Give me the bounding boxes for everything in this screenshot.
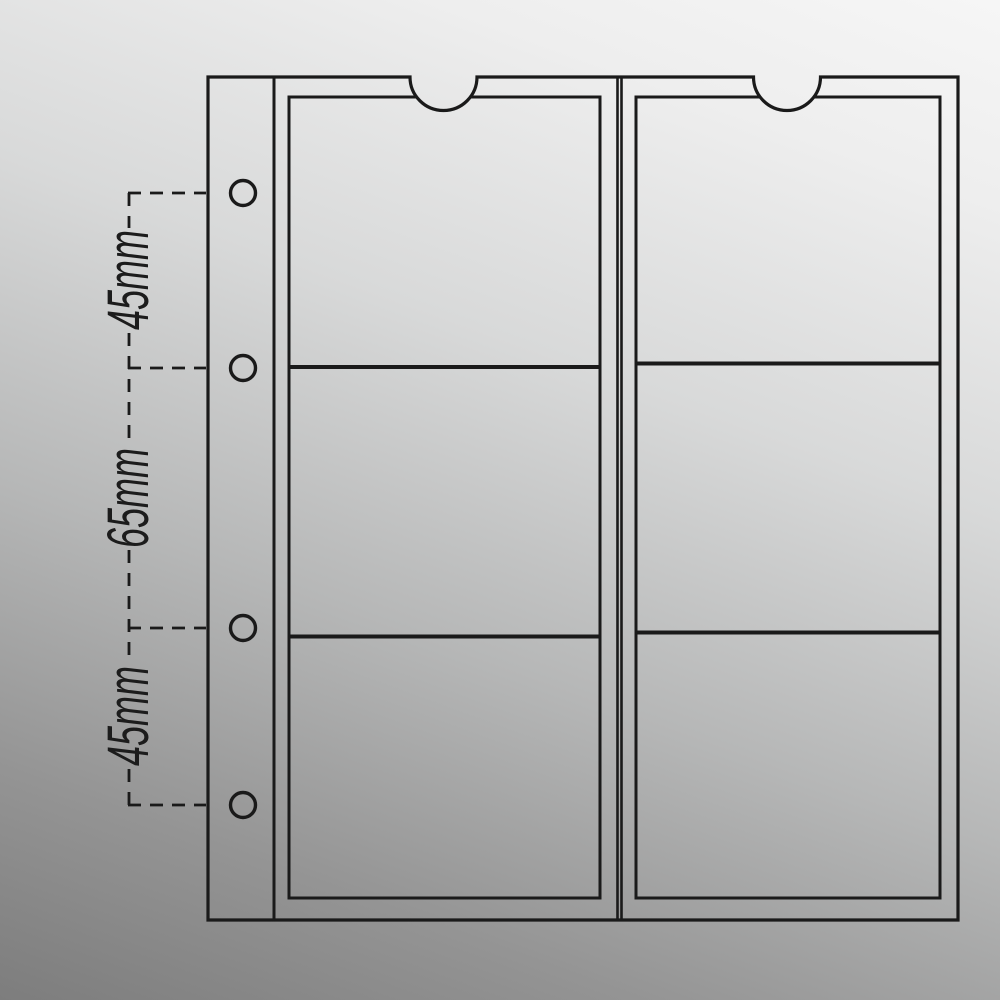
- page-outline: [208, 77, 958, 920]
- pocket-strip-left: [289, 97, 600, 898]
- binder-hole-1: [231, 181, 256, 206]
- binder-hole-3: [231, 616, 256, 641]
- product-diagram-stage: 45mm 65mm 45mm: [0, 0, 1000, 1000]
- binder-hole-4: [231, 793, 256, 818]
- binder-hole-2: [231, 356, 256, 381]
- pocket-strip-right: [636, 97, 940, 898]
